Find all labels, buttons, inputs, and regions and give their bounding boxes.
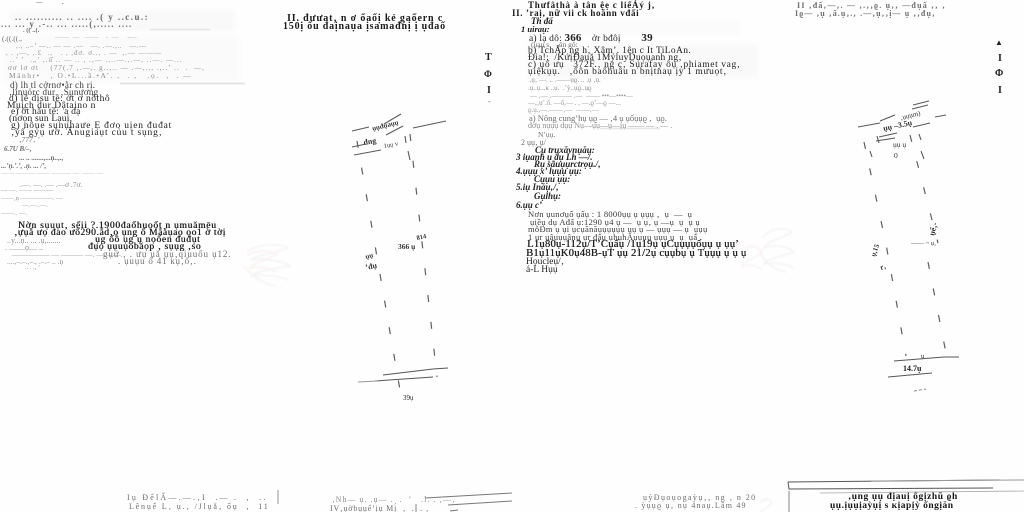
svg-text:ụụ: ụụ — [365, 251, 375, 261]
svg-text:r‚: r‚ — [879, 261, 888, 271]
svg-text:’đụ: ’đụ — [365, 261, 379, 272]
svg-text:ụụ ụ: ụụ ụ — [893, 140, 906, 149]
svg-text:ụể‚-: ụể‚- — [927, 221, 939, 237]
svg-text:14.7ụ: 14.7ụ — [903, 364, 922, 373]
svg-text:1ụụ v: 1ụụ v — [383, 140, 399, 150]
svg-text:—— ~ ụ‚: —— ~ ụ‚ — [910, 240, 936, 247]
svg-text:366 ụ: 366 ụ — [398, 242, 415, 251]
svg-text:ụụ –3.5ụ: ụụ –3.5ụ — [882, 118, 913, 133]
svg-text:814: 814 — [416, 233, 428, 242]
svg-text:0: 0 — [894, 151, 898, 160]
svg-text:ụ,15: ụ,15 — [869, 243, 881, 258]
svg-text:đng: đng — [363, 136, 377, 147]
svg-text:39ụ: 39ụ — [403, 394, 414, 402]
